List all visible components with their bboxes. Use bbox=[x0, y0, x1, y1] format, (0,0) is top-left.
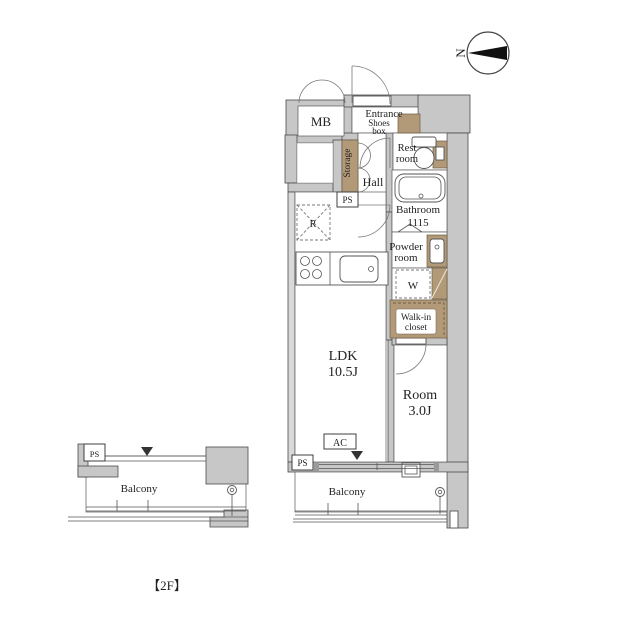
ac-label: AC bbox=[333, 438, 347, 449]
washer-label: W bbox=[408, 280, 419, 292]
mb-door-left-icon bbox=[299, 80, 322, 103]
left-balcony-right-block bbox=[206, 447, 248, 484]
bathroom-label-1: Bathroom bbox=[396, 204, 440, 216]
left-upper-wall bbox=[285, 135, 297, 183]
storage-top-cap bbox=[342, 133, 358, 140]
bathroom-label-2: 1115 bbox=[407, 217, 429, 229]
storage-label: Storage bbox=[343, 148, 353, 177]
shoes-box-label-2: box bbox=[372, 126, 386, 136]
main-balcony-drain-icon bbox=[436, 488, 445, 497]
room-left-wall bbox=[388, 340, 394, 462]
walk-in-closet-label-1: Walk-in bbox=[401, 313, 432, 323]
ps-label-2: PS bbox=[297, 458, 307, 468]
kitchen-sink-icon bbox=[340, 256, 378, 282]
right-wall-notch bbox=[450, 511, 458, 528]
ps-label-3: PS bbox=[90, 449, 100, 459]
top-right-wall-block bbox=[418, 95, 470, 133]
compass-icon: N bbox=[453, 32, 509, 74]
floor-label: 【2F】 bbox=[147, 578, 187, 593]
left-window-marker-icon bbox=[141, 447, 153, 456]
ldk-label-1: LDK bbox=[329, 349, 358, 364]
mb-label: MB bbox=[311, 114, 332, 129]
void-pocket bbox=[297, 143, 333, 183]
left-balcony-step-wall bbox=[210, 510, 248, 527]
room-door-opening bbox=[396, 338, 426, 344]
main-balcony-label: Balcony bbox=[329, 486, 366, 498]
left-balcony-drain-icon bbox=[228, 486, 237, 495]
room-label-1: Room bbox=[403, 388, 437, 403]
compass-north-label: N bbox=[453, 48, 468, 58]
window-end-cap-right bbox=[434, 463, 439, 471]
ldk-floor bbox=[295, 192, 386, 462]
mb-door-right-icon bbox=[322, 80, 345, 103]
left-balcony-label: Balcony bbox=[121, 483, 158, 495]
ps-label-1: PS bbox=[342, 195, 352, 205]
room-label-2: 3.0J bbox=[409, 404, 433, 419]
floorplan-canvas: N MB Entrance Shoes box Storage Hall PS … bbox=[0, 0, 640, 640]
rest-room-label-1: Rest bbox=[398, 143, 417, 154]
floorplan-svg: N MB Entrance Shoes box Storage Hall PS … bbox=[0, 0, 640, 640]
vanity-basin-icon bbox=[430, 239, 444, 263]
rest-room-cabinet-detail bbox=[436, 147, 444, 160]
left-window-wall bbox=[288, 192, 295, 462]
entrance-door-opening bbox=[353, 96, 391, 106]
storage-left-wall bbox=[333, 140, 342, 192]
ldk-label-2: 10.5J bbox=[328, 365, 359, 380]
refrigerator-label: R bbox=[310, 219, 317, 230]
main-balcony-floor bbox=[295, 472, 447, 512]
powder-room-label-2: room bbox=[394, 252, 418, 264]
left-balcony-wall-stub bbox=[78, 466, 118, 477]
window-end-cap-left bbox=[314, 463, 319, 471]
walk-in-closet-label-2: closet bbox=[405, 323, 428, 333]
rest-room-label-2: room bbox=[396, 154, 418, 165]
hall-label: Hall bbox=[363, 175, 384, 189]
